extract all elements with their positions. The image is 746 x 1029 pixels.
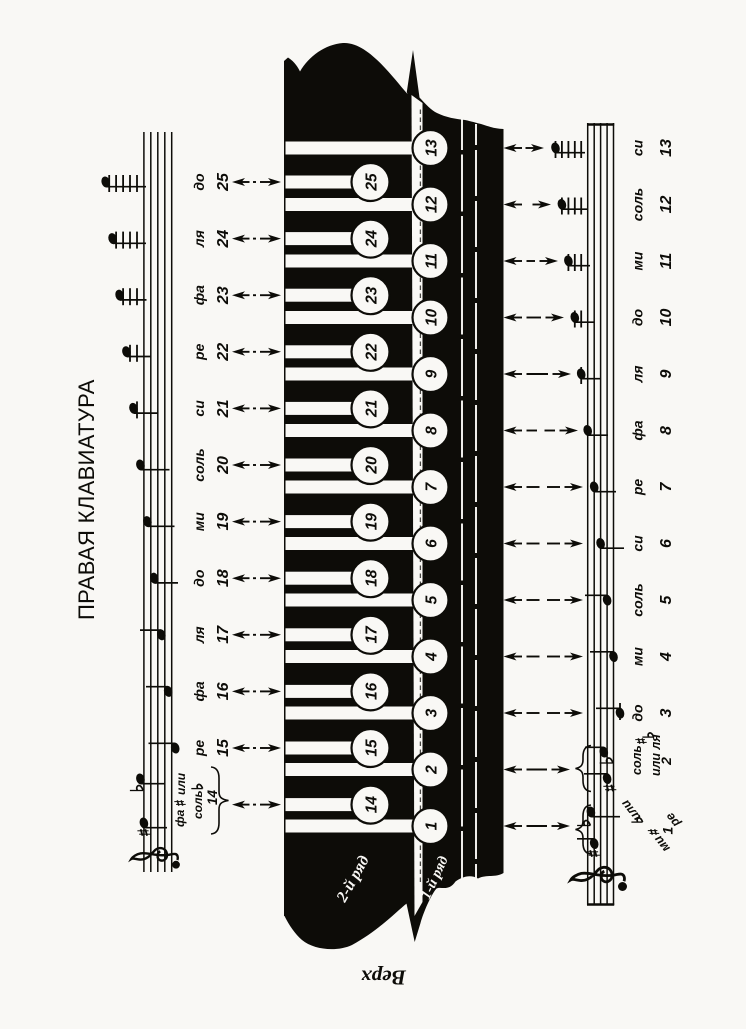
svg-text:7: 7: [658, 481, 675, 491]
svg-text:6: 6: [658, 539, 675, 548]
svg-text:ми: ми: [191, 512, 207, 531]
svg-text:10: 10: [424, 309, 441, 327]
svg-text:13: 13: [424, 139, 441, 157]
svg-text:24: 24: [364, 230, 381, 249]
svg-text:13: 13: [658, 139, 675, 157]
svg-text:11: 11: [424, 253, 441, 269]
svg-text:соль: соль: [630, 745, 644, 775]
svg-text:23: 23: [364, 286, 381, 305]
svg-text:ре: ре: [191, 343, 207, 361]
svg-text:23: 23: [215, 286, 232, 305]
svg-text:2: 2: [424, 765, 441, 775]
svg-text:11: 11: [658, 253, 675, 270]
svg-text:14: 14: [205, 789, 220, 805]
svg-text:18: 18: [215, 569, 232, 587]
svg-text:6: 6: [424, 539, 441, 548]
svg-text:22: 22: [364, 343, 381, 362]
svg-text:ре: ре: [191, 740, 207, 758]
svg-text:си: си: [191, 400, 207, 417]
svg-text:10: 10: [658, 309, 675, 327]
svg-text:Верх: Верх: [361, 966, 407, 990]
svg-text:соль: соль: [191, 448, 207, 481]
svg-text:ля: ля: [630, 366, 646, 384]
svg-text:8: 8: [424, 426, 441, 435]
svg-text:си: си: [630, 139, 646, 156]
svg-text:до: до: [630, 308, 646, 326]
svg-text:17: 17: [364, 625, 381, 644]
svg-text:5: 5: [424, 595, 441, 604]
svg-text:до: до: [630, 704, 646, 722]
svg-text:20: 20: [215, 456, 232, 475]
svg-text:21: 21: [215, 399, 232, 418]
svg-text:или ля: или ля: [649, 734, 663, 776]
svg-text:ля: ля: [191, 626, 207, 644]
svg-text:24: 24: [215, 230, 232, 249]
svg-text:9: 9: [658, 369, 675, 378]
svg-text:ля: ля: [191, 230, 207, 248]
svg-text:ми: ми: [630, 647, 646, 666]
svg-text:соль: соль: [191, 790, 205, 819]
svg-text:8: 8: [658, 426, 675, 435]
svg-text:ми: ми: [630, 251, 646, 270]
svg-text:4: 4: [658, 652, 675, 662]
svg-text:12: 12: [424, 196, 441, 214]
svg-text:15: 15: [364, 739, 381, 757]
svg-text:21: 21: [364, 400, 381, 418]
svg-text:7: 7: [424, 481, 441, 491]
svg-text:3: 3: [424, 708, 441, 717]
svg-text:16: 16: [215, 682, 232, 700]
svg-text:9: 9: [424, 369, 441, 378]
svg-text:15: 15: [215, 738, 232, 757]
svg-text:12: 12: [658, 196, 675, 214]
svg-text:20: 20: [364, 456, 381, 475]
svg-text:19: 19: [215, 513, 232, 531]
svg-text:ПРАВАЯ КЛАВИАТУРА: ПРАВАЯ КЛАВИАТУРА: [74, 377, 99, 620]
svg-text:19: 19: [364, 513, 381, 531]
svg-text:соль: соль: [630, 583, 646, 616]
svg-text:до: до: [191, 569, 207, 587]
svg-text:25: 25: [215, 172, 232, 192]
svg-text:25: 25: [364, 173, 381, 192]
svg-text:4: 4: [424, 652, 441, 662]
svg-text:фа: фа: [191, 681, 207, 701]
svg-text:ре: ре: [630, 479, 646, 497]
svg-text:до: до: [191, 173, 207, 191]
svg-text:17: 17: [215, 625, 232, 644]
svg-text:си: си: [630, 535, 646, 552]
svg-text:16: 16: [364, 682, 381, 700]
svg-text:18: 18: [364, 569, 381, 587]
svg-text:фа: фа: [191, 285, 207, 305]
svg-text:1: 1: [424, 822, 441, 831]
svg-text:22: 22: [215, 343, 232, 362]
svg-text:5: 5: [658, 594, 675, 604]
svg-text:фа: фа: [173, 809, 187, 827]
svg-text:фа: фа: [630, 420, 646, 440]
svg-text:14: 14: [364, 796, 381, 814]
svg-text:или: или: [174, 772, 188, 795]
svg-text:соль: соль: [630, 188, 646, 221]
svg-text:3: 3: [658, 708, 675, 717]
svg-text:2: 2: [658, 757, 674, 766]
